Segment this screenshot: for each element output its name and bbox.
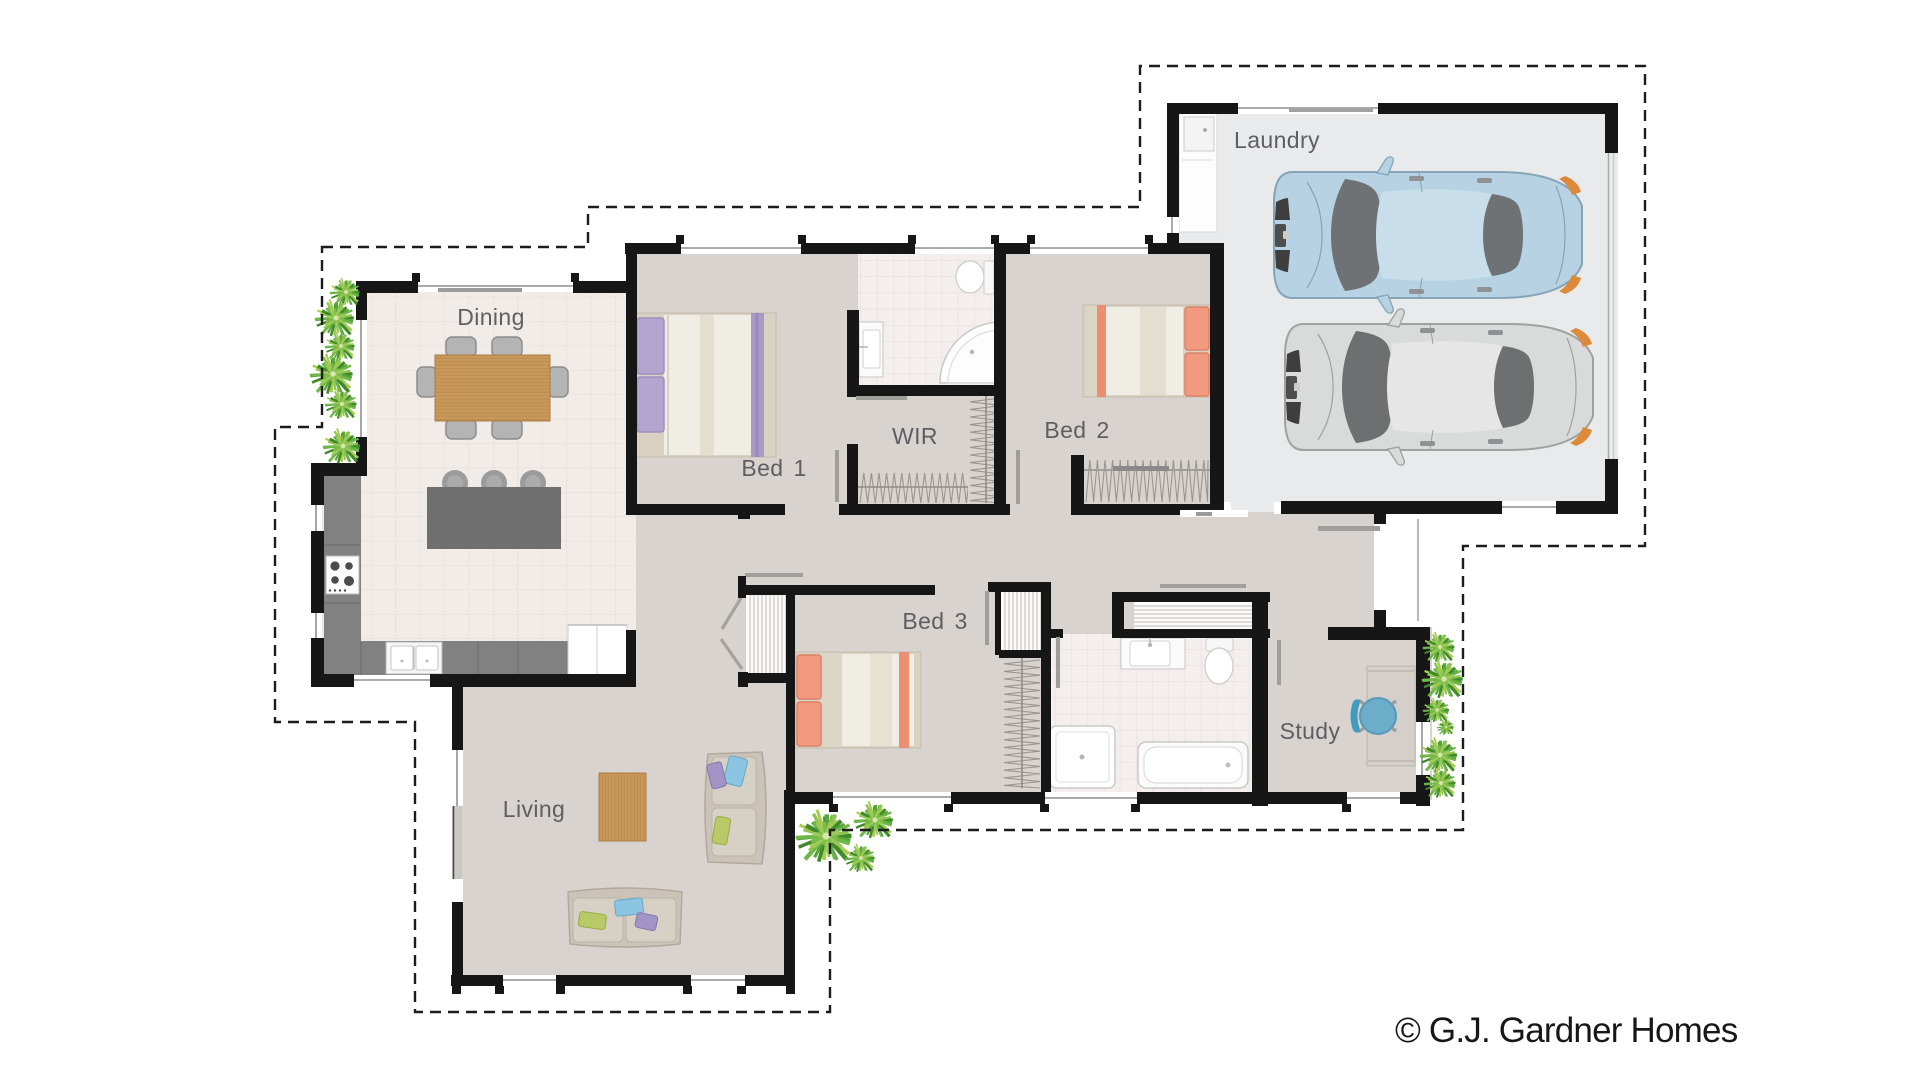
svg-text:Bed 3: Bed 3 [902,608,967,634]
svg-text:Bed 2: Bed 2 [1044,417,1109,443]
svg-text:Study: Study [1280,718,1341,744]
svg-text:Bed 1: Bed 1 [741,455,806,481]
svg-text:Living: Living [503,796,566,822]
svg-text:Dining: Dining [457,304,525,330]
svg-text:© G.J. Gardner Homes: © G.J. Gardner Homes [1395,1011,1738,1050]
svg-text:Laundry: Laundry [1234,127,1320,153]
svg-text:WIR: WIR [892,423,938,449]
